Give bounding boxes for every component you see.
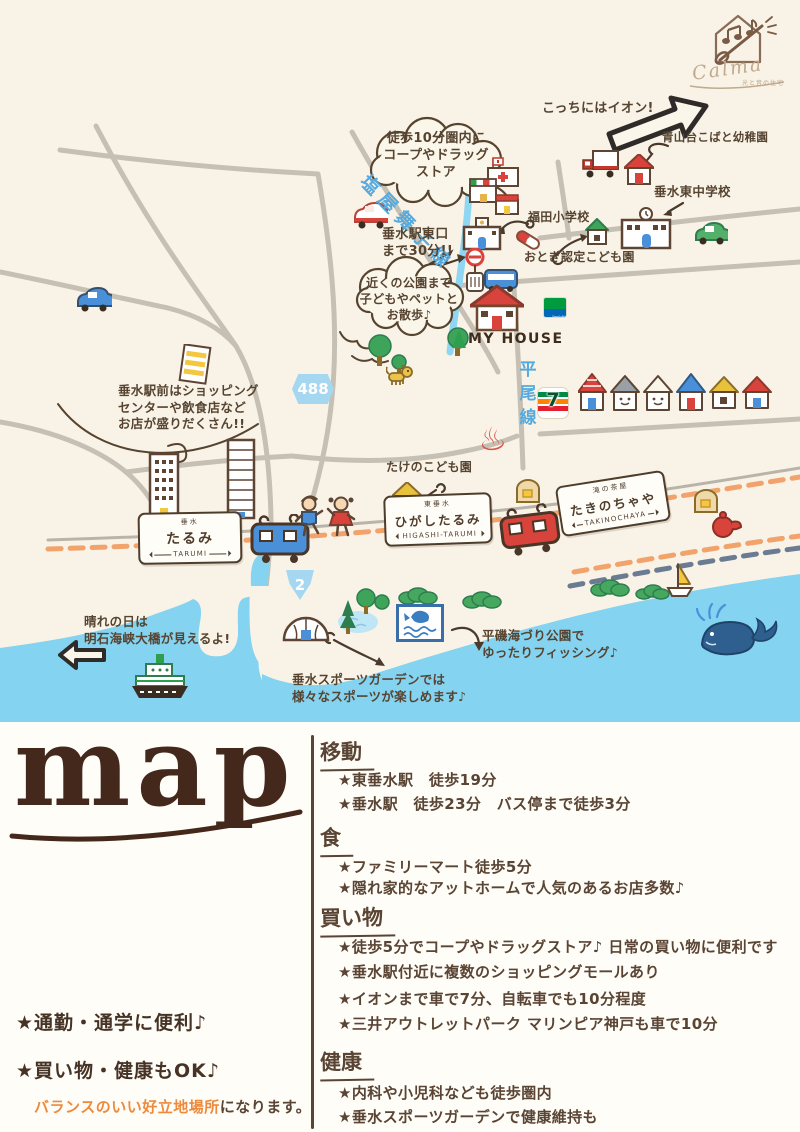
note-park-cloud: 近くの公園まで 子どもやペットと お散歩♪ [350,276,468,323]
sailboat-icon [664,562,694,598]
section-title-food: 食 [320,822,354,858]
route-488-badge: 488 [292,374,334,404]
station-small-name: 垂水 [146,516,234,528]
whale-icon [696,596,780,662]
flyer-page: FamilyMart FamilyMart 7 488 2 ♨ 垂水 たるみ T… [0,0,800,1132]
blue-car-icon [76,286,112,312]
my-house-icon [470,284,524,332]
seven-label: 7 [538,389,568,411]
list-item: ★垂水スポーツガーデンで健康維持も [338,1106,598,1127]
onsen-icon: ♨ [476,419,509,460]
familymart-logo: FamilyMart [544,298,566,317]
ferry-icon [128,650,192,702]
green-car-icon [694,220,728,246]
note-station-east-exit: 垂水駅東口 まで30分!! [382,226,453,260]
station-sign-higashi-tarumi: 東垂水 ひがしたるみ HIGASHI-TARUMI [383,492,493,547]
vertical-divider [311,735,314,1129]
sports-dome-icon [282,600,330,644]
note-aeon: こっちにはイオン! [542,100,654,117]
section-title-health: 健康 [320,1046,375,1082]
list-item: ★徒歩5分でコープやドラッグストア♪ 日常の買い物に便利です [338,936,778,957]
toast-icon [514,478,542,506]
sign-ruler: HIGASHI-TARUMI [392,529,484,540]
note-otogi-kodomoen: おとぎ認定こども園 [524,250,635,266]
station-main-name: ひがしたるみ [392,508,485,530]
station-main-name: たるみ [146,527,234,549]
note-akashi-bridge: 晴れの日は 明石海峡大橋が見えるよ! [84,614,230,647]
list-item: ★隠れ家的なアットホームで人気のあるお店多数♪ [338,877,685,898]
section-title-transport: 移動 [320,736,375,772]
my-house-label: MY HOUSE [468,331,564,347]
truck-icon [582,148,620,180]
tagline-rest: になります。 [220,1098,312,1116]
calma-logo: Calma 光と音の住宅 [688,6,796,100]
tagline-emphasis: バランスのいい好立地場所 [34,1098,220,1116]
section-title-shopping: 買い物 [320,901,396,937]
teapot-icon [708,508,744,540]
seven-eleven-logo: 7 [538,388,568,418]
note-fukuda-es: 福田小学校 [528,210,590,226]
kindergarten-house-icon [624,154,654,186]
red-train-icon [495,501,565,560]
list-item: ★垂水駅付近に複数のショッピングモールあり [338,961,660,982]
medicine-capsule-icon [514,228,542,252]
list-item: ★東垂水駅 徒歩19分 [338,769,497,790]
list-item: ★三井アウトレットパーク マリンピア神戸も車で10分 [338,1013,718,1034]
highlight-shopping-health: ★買い物・健康もOK♪ [16,1056,220,1083]
location-tagline: バランスのいい好立地場所になります。 [34,1096,311,1117]
yellow-building-icon [178,344,212,386]
note-kobato-kindergarten: 青山台こばと幼稚園 [662,130,768,145]
station-sign-tarumi: 垂水 たるみ TARUMI [138,511,243,565]
note-hiraiso-park: 平磯海づり公園で ゆったりフィッシング♪ [482,628,618,661]
note-ekimae: 垂水駅前はショッピング センターや飲食店など お店が盛りだくさん!! [118,383,259,433]
fishing-flag-icon [396,604,444,642]
houses-row [578,370,778,424]
note-tarumi-higashi-jhs: 垂水東中学校 [654,184,731,201]
list-item: ★垂水駅 徒歩23分 バス停まで徒歩3分 [338,793,631,814]
elementary-school-icon [462,216,502,252]
familymart-label: FamilyMart [552,315,566,317]
highlight-commute: ★通勤・通学に便利♪ [16,1008,207,1035]
mini-store-icon [494,192,520,216]
striped-building-icon [226,438,256,520]
map-area: FamilyMart FamilyMart 7 488 2 ♨ 垂水 たるみ T… [0,0,800,722]
list-item: ★ファミリーマート徒歩5分 [338,856,532,877]
office-building-icon [148,452,180,520]
note-sports-garden: 垂水スポーツガーデンでは 様々なスポーツが楽しめます♪ [292,672,466,705]
dog-icon [386,364,414,386]
logo-tagline: 光と音の住宅 [742,78,784,87]
title-underline-swoosh [6,806,306,844]
station-romaji: TARUMI [173,550,207,559]
list-item: ★イオンまで車で7分、自転車でも10分程度 [338,988,646,1009]
station-romaji: HIGASHI-TARUMI [402,530,477,541]
note-walk10-cloud: 徒歩10分圏内に コープやドラッグ ストア [368,130,504,181]
sign-ruler: TARUMI [146,549,234,559]
junior-high-school-icon [620,206,672,250]
note-takeno-kodomoen: たけのこども園 [386,460,472,476]
note-hirao-line: 平尾線 [514,360,536,450]
list-item: ★内科や小児科なども徒歩圏内 [338,1082,552,1103]
children-icon [294,492,358,550]
